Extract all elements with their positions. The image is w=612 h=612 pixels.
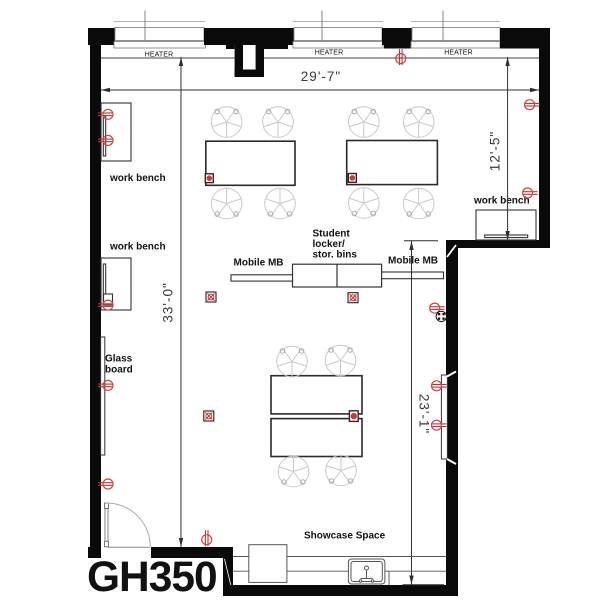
- svg-text:work bench: work bench: [109, 242, 166, 253]
- svg-text:33'-0": 33'-0": [160, 282, 175, 322]
- svg-text:12'-5": 12'-5": [487, 131, 502, 171]
- svg-text:Glass: Glass: [105, 354, 133, 365]
- svg-text:Showcase Space: Showcase Space: [304, 531, 386, 542]
- svg-text:HEATER: HEATER: [444, 50, 472, 57]
- svg-text:29'-7": 29'-7": [301, 69, 341, 84]
- svg-text:Mobile MB: Mobile MB: [388, 256, 438, 267]
- svg-text:Mobile MB: Mobile MB: [234, 258, 284, 269]
- svg-text:HEATER: HEATER: [145, 52, 173, 59]
- svg-text:stor. bins: stor. bins: [313, 250, 358, 261]
- svg-text:locker/: locker/: [313, 239, 345, 250]
- svg-text:23'-1": 23'-1": [417, 394, 432, 434]
- svg-text:work bench: work bench: [473, 196, 530, 207]
- svg-text:HEATER: HEATER: [315, 50, 343, 57]
- svg-text:board: board: [105, 365, 133, 376]
- svg-text:Student: Student: [313, 229, 351, 240]
- svg-text:work bench: work bench: [109, 173, 166, 184]
- svg-text:GH350: GH350: [87, 554, 217, 601]
